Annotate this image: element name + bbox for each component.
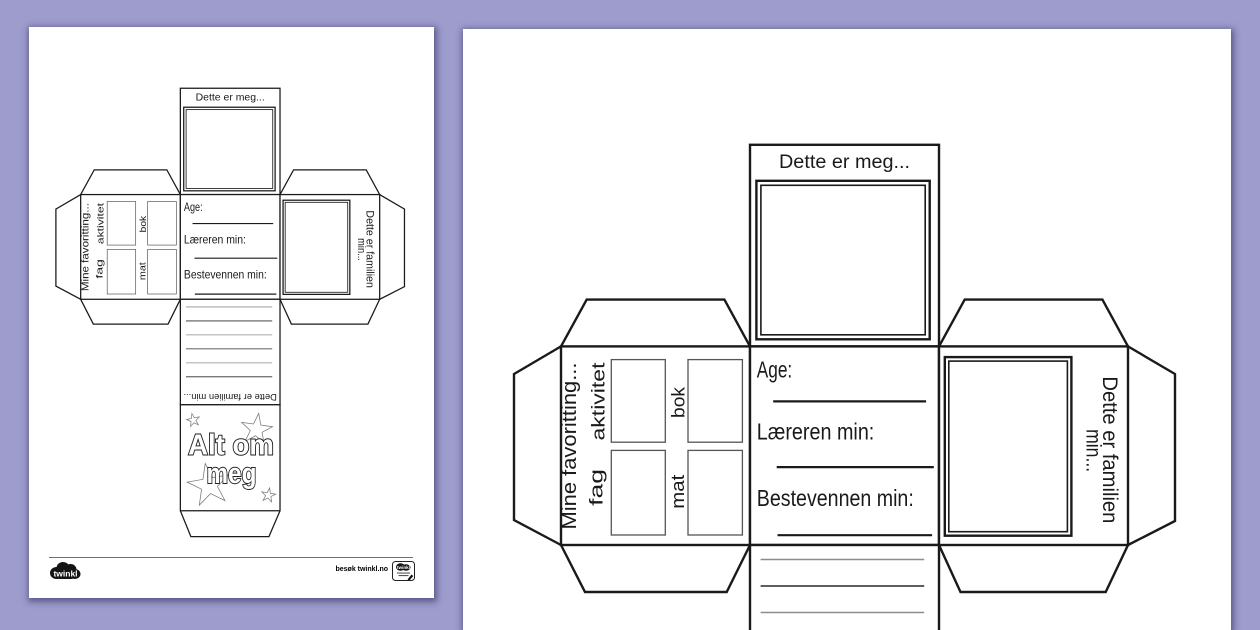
svg-text:twinkl: twinkl: [397, 565, 410, 570]
svg-text:twinkl: twinkl: [53, 569, 77, 579]
